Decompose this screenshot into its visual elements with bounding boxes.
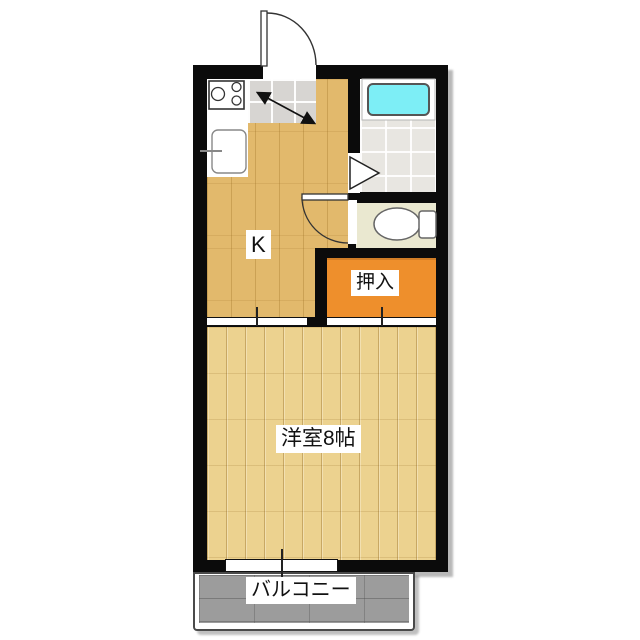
closet-label: 押入 (351, 270, 399, 296)
entrance-opening (263, 65, 316, 79)
genkan-tile-area (248, 79, 316, 123)
entrance-door-icon (261, 11, 316, 66)
kitchen-counter (207, 79, 248, 177)
main-room-label: 洋室8帖 (276, 425, 361, 453)
toilet-area (356, 203, 436, 248)
kitchen-label: K (246, 230, 271, 259)
kitchen-room-sliding-door (207, 317, 307, 326)
bathroom-area (360, 79, 436, 192)
balcony-label: バルコニー (246, 577, 356, 604)
closet-fusuma-doors (327, 317, 436, 326)
balcony-window (225, 559, 338, 572)
floorplan-canvas: K 押入 洋室8帖 バルコニー (0, 0, 640, 640)
